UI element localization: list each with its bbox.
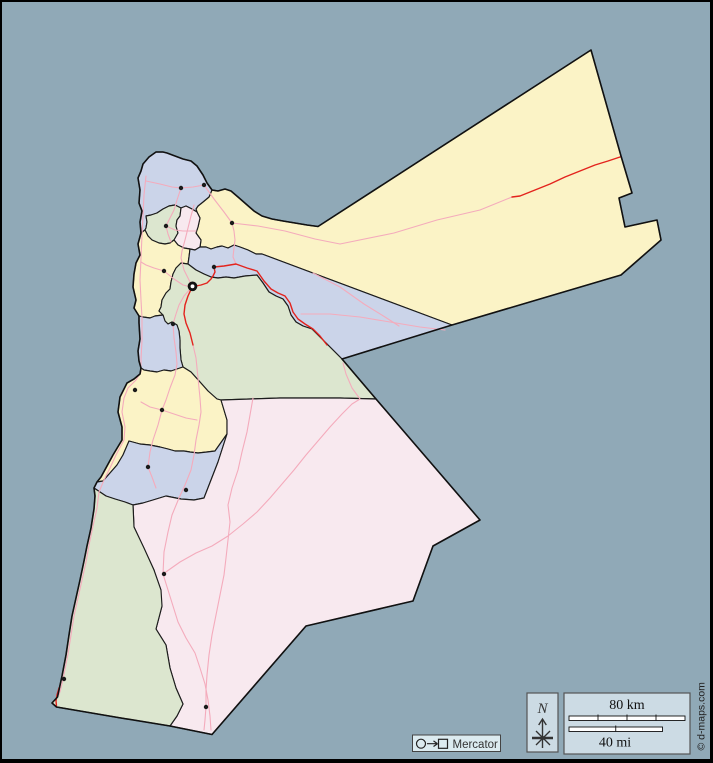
svg-text:Mercator: Mercator [453,739,499,751]
svg-text:80 km: 80 km [609,698,645,713]
svg-text:N: N [536,701,548,717]
svg-text:40 mi: 40 mi [599,736,631,751]
svg-text:© d-maps.com: © d-maps.com [696,682,708,751]
